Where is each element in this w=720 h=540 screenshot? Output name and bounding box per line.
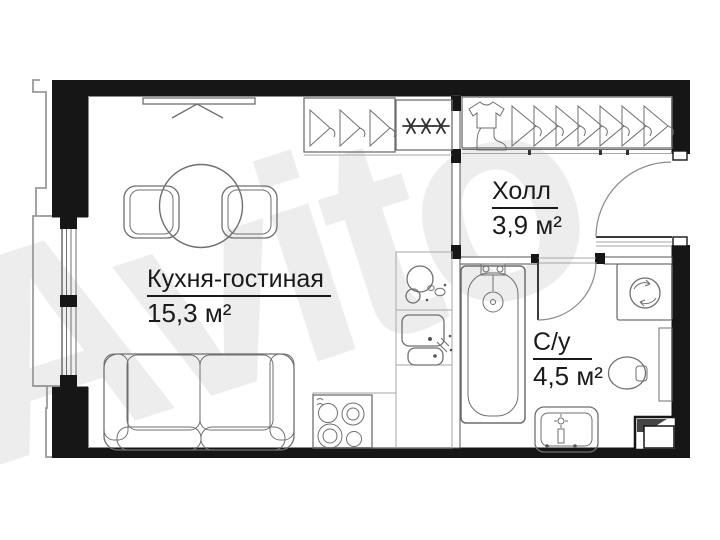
stove-icon bbox=[313, 395, 372, 448]
floor-plan: Avito bbox=[0, 0, 720, 540]
chair-icon bbox=[222, 186, 277, 238]
floor-plan-drawing bbox=[0, 0, 720, 540]
round-dining-table-icon bbox=[124, 165, 277, 248]
sofa-icon bbox=[104, 354, 294, 450]
toilet-icon bbox=[609, 328, 673, 401]
partition-walls bbox=[451, 96, 672, 448]
wardrobe-entry bbox=[462, 97, 673, 155]
shirt-icon bbox=[469, 102, 504, 128]
room-area: 3,9 м² bbox=[492, 212, 562, 238]
room-label-hall: Холл 3,9 м² bbox=[492, 178, 562, 238]
washing-machine-icon bbox=[617, 264, 672, 320]
ventilation-shaft-icon bbox=[635, 417, 676, 450]
kitchen-counter bbox=[313, 252, 452, 448]
washbasin-icon bbox=[535, 407, 598, 452]
room-label-kitchen-living: Кухня-гостиная 15,3 м² bbox=[147, 266, 331, 326]
kitchen-cabinet-icon bbox=[402, 315, 452, 365]
label-underline bbox=[147, 295, 331, 297]
label-underline bbox=[533, 358, 592, 360]
room-name: С/у bbox=[533, 329, 603, 356]
boot-icon bbox=[477, 128, 506, 150]
entrance-door-icon bbox=[596, 151, 687, 246]
label-underline bbox=[492, 207, 558, 209]
tv-icon bbox=[143, 98, 255, 118]
room-area: 15,3 м² bbox=[147, 300, 331, 326]
room-label-bathroom: С/у 4,5 м² bbox=[533, 329, 603, 389]
bathtub-icon bbox=[461, 264, 525, 423]
room-area: 4,5 м² bbox=[533, 363, 603, 389]
room-name: Холл bbox=[492, 178, 562, 205]
room-name: Кухня-гостиная bbox=[147, 266, 331, 293]
bathroom-door-icon bbox=[538, 258, 596, 320]
kitchen-sink-icon bbox=[406, 266, 446, 303]
wardrobe-shelves-icon bbox=[396, 100, 452, 150]
chair-icon bbox=[124, 186, 179, 238]
